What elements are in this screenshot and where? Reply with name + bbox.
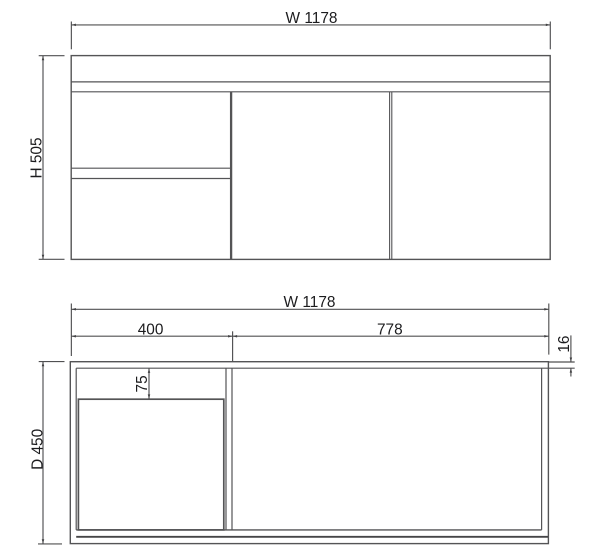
svg-text:400: 400: [138, 321, 164, 338]
svg-text:H 505: H 505: [28, 137, 45, 178]
svg-text:W 1178: W 1178: [284, 294, 336, 311]
svg-text:75: 75: [134, 375, 151, 392]
svg-text:778: 778: [377, 321, 403, 338]
svg-text:16: 16: [556, 336, 573, 353]
svg-text:W 1178: W 1178: [286, 10, 338, 27]
svg-text:D 450: D 450: [30, 429, 47, 470]
